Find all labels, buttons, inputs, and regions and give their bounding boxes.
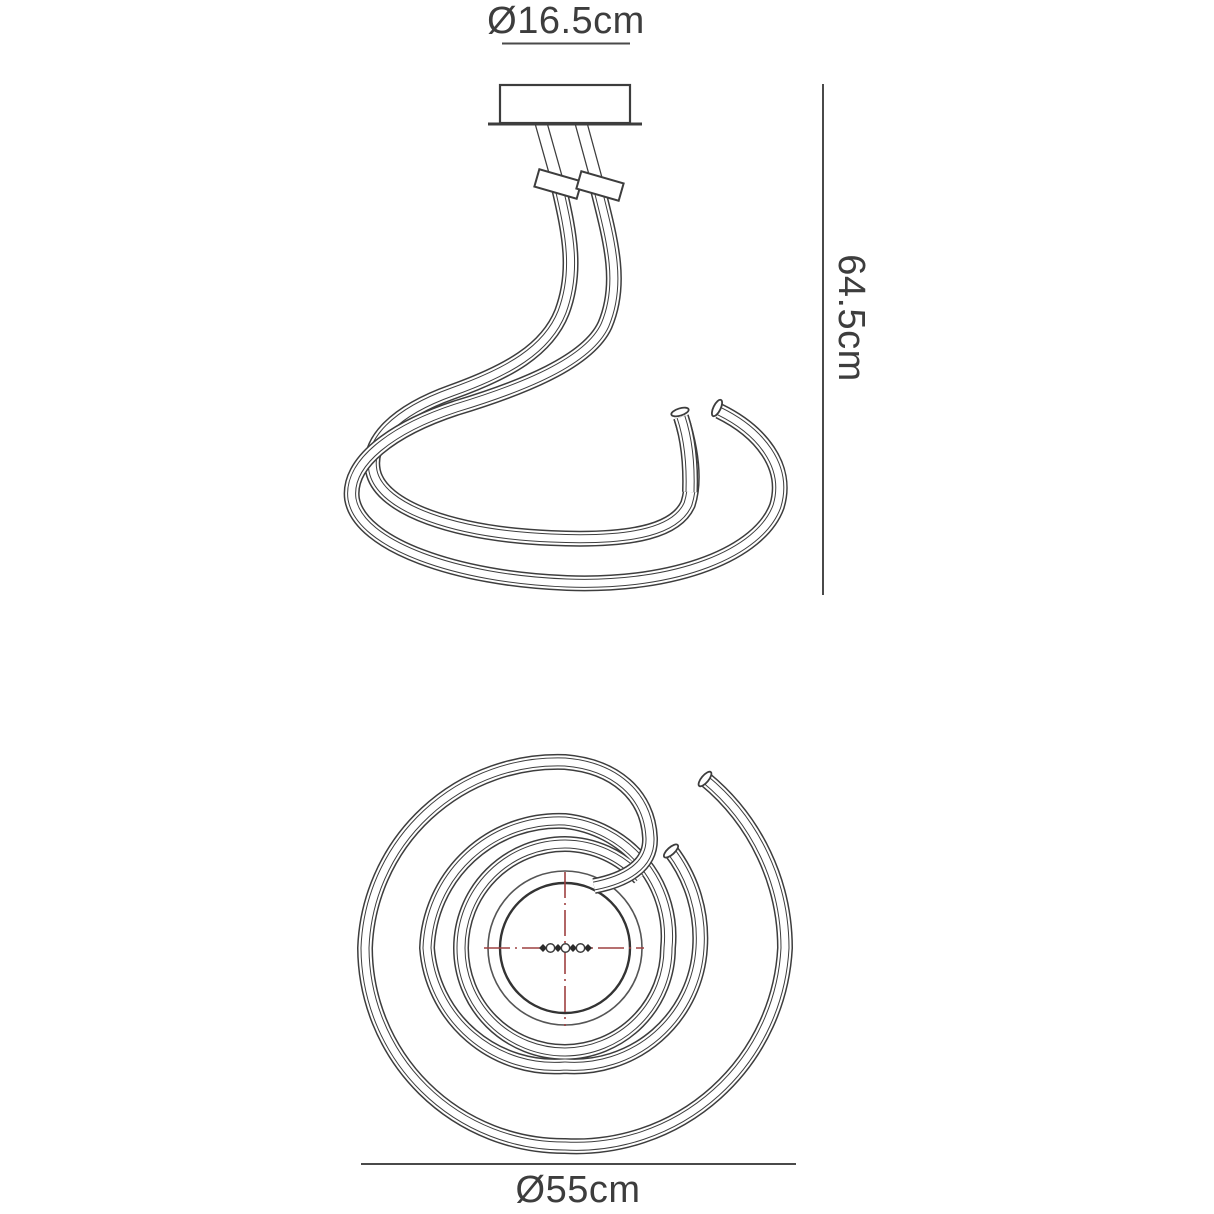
dimension-label-fixture-diameter: Ø55cm xyxy=(516,1170,641,1212)
dimension-label-canopy-diameter: Ø16.5cm xyxy=(487,1,645,43)
mounting-holes xyxy=(539,944,592,952)
technical-drawing-page: Ø16.5cm 64.5cm Ø55cm xyxy=(0,0,1214,1214)
top-view xyxy=(365,762,785,1146)
side-view xyxy=(352,85,780,583)
led-tube-front-end-segment xyxy=(681,417,690,492)
canopy-side xyxy=(500,85,630,123)
dimension-label-fixture-height: 64.5cm xyxy=(829,254,871,382)
led-tube-front xyxy=(372,188,692,539)
rod-connector-back xyxy=(576,171,623,200)
rod-connector-front xyxy=(534,169,581,198)
technical-drawing xyxy=(0,0,1214,1214)
